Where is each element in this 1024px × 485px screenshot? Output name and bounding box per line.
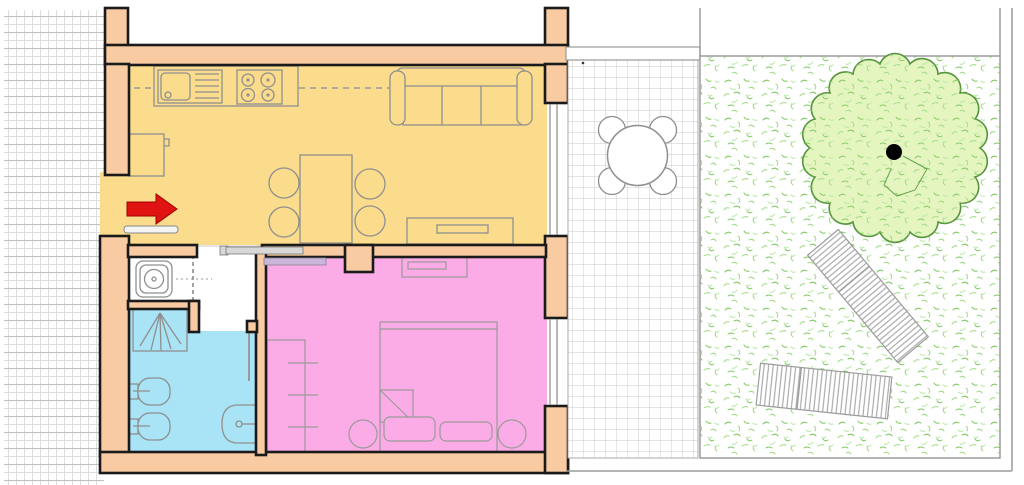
dining-chair bbox=[269, 168, 299, 198]
terrace bbox=[566, 47, 700, 458]
wall-segment bbox=[128, 245, 197, 257]
sofa-armrest-left bbox=[390, 71, 405, 125]
pillow bbox=[440, 422, 492, 441]
dining-table bbox=[300, 155, 352, 243]
bedroom-sliding-door-track bbox=[264, 258, 326, 265]
wall-segment bbox=[100, 452, 568, 473]
wall-stub bbox=[247, 321, 257, 332]
pillow bbox=[384, 417, 435, 441]
sofa-back bbox=[396, 68, 526, 88]
wall-pier bbox=[345, 245, 373, 272]
sofa-armrest-right bbox=[517, 71, 532, 125]
washbasin bbox=[222, 405, 256, 443]
wall-segment bbox=[256, 252, 266, 455]
kitchen-counter bbox=[154, 66, 298, 106]
dining-chair bbox=[269, 207, 299, 237]
wall-segment bbox=[545, 406, 568, 473]
neighbor-area-grid bbox=[4, 10, 104, 485]
wall-stub bbox=[189, 301, 199, 332]
bedroom-window bbox=[550, 319, 557, 405]
dresser bbox=[402, 257, 467, 277]
tv bbox=[437, 225, 488, 233]
wall-segment bbox=[105, 64, 129, 175]
nightstand bbox=[349, 420, 377, 448]
dining-chair bbox=[355, 206, 385, 236]
terrace-threshold bbox=[566, 47, 700, 60]
entrance-door-leaf bbox=[124, 226, 178, 233]
terrace-tiles bbox=[568, 60, 698, 458]
wall-segment bbox=[262, 245, 546, 257]
fridge bbox=[129, 134, 169, 176]
wall-segment bbox=[545, 236, 568, 318]
tv-cabinet bbox=[407, 218, 513, 244]
faucet-icon bbox=[165, 92, 171, 98]
hallway-floor bbox=[196, 245, 257, 332]
sofa bbox=[390, 68, 532, 125]
floorplan-image bbox=[0, 0, 1024, 485]
dining-chair bbox=[355, 169, 385, 199]
wall-segment bbox=[100, 236, 129, 456]
wall-segment bbox=[545, 64, 568, 103]
terrace-table-set bbox=[599, 117, 677, 195]
tree bbox=[803, 54, 988, 243]
survey-dot bbox=[582, 62, 585, 65]
wall-segment bbox=[105, 45, 568, 65]
living-room-window bbox=[550, 104, 557, 235]
bedroom-sliding-door-leaf bbox=[226, 247, 303, 254]
terrace-round-table bbox=[608, 126, 668, 186]
tree-trunk bbox=[886, 144, 902, 160]
double-bed bbox=[380, 322, 497, 452]
shower bbox=[133, 308, 187, 351]
sofa-seat bbox=[403, 86, 521, 125]
nightstand bbox=[498, 420, 526, 448]
washing-machine bbox=[136, 261, 172, 297]
